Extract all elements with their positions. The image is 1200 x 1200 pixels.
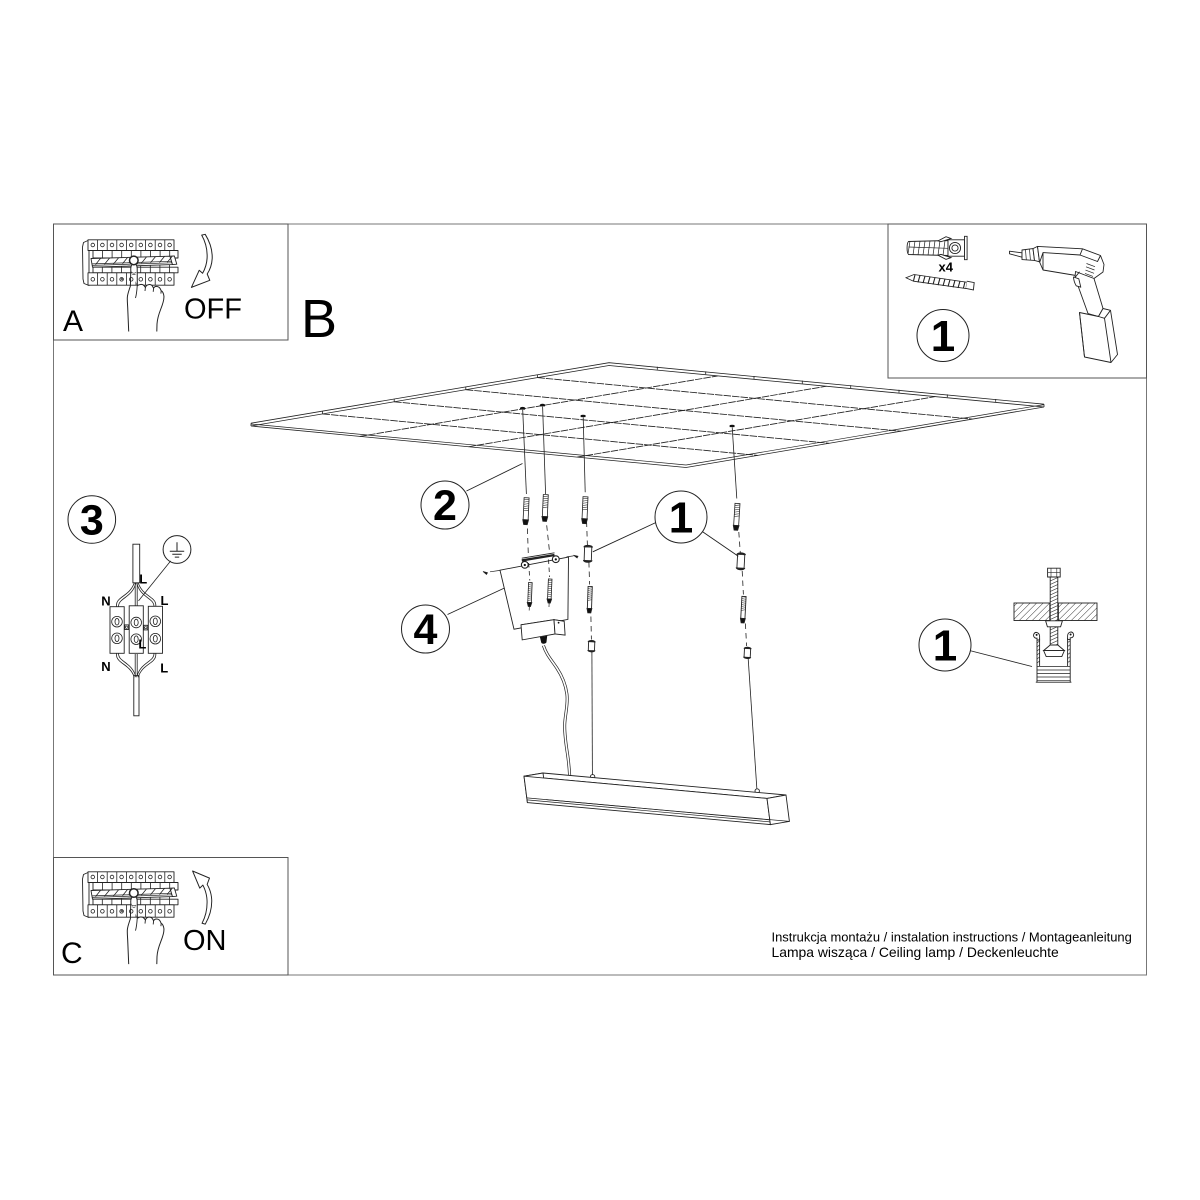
svg-text:1: 1 — [933, 622, 957, 671]
svg-text:x4: x4 — [939, 260, 954, 275]
svg-text:3: 3 — [80, 497, 104, 545]
svg-text:Lampa wisząca / Ceiling lamp /: Lampa wisząca / Ceiling lamp / Deckenleu… — [772, 944, 1059, 960]
svg-text:1: 1 — [931, 312, 955, 361]
svg-text:N: N — [101, 659, 110, 674]
svg-text:Instrukcja montażu / instalati: Instrukcja montażu / instalation instruc… — [772, 930, 1132, 945]
svg-text:C: C — [61, 937, 83, 970]
svg-text:B: B — [301, 289, 337, 349]
svg-text:N: N — [101, 594, 110, 609]
svg-text:A: A — [63, 305, 83, 338]
svg-text:L: L — [160, 661, 168, 676]
svg-text:4: 4 — [414, 606, 438, 654]
svg-text:1: 1 — [669, 494, 693, 543]
svg-text:L: L — [139, 572, 147, 587]
svg-text:2: 2 — [433, 482, 457, 530]
svg-text:OFF: OFF — [184, 294, 242, 326]
svg-text:L: L — [138, 637, 146, 652]
svg-text:L: L — [161, 593, 169, 608]
svg-text:ON: ON — [183, 925, 227, 957]
